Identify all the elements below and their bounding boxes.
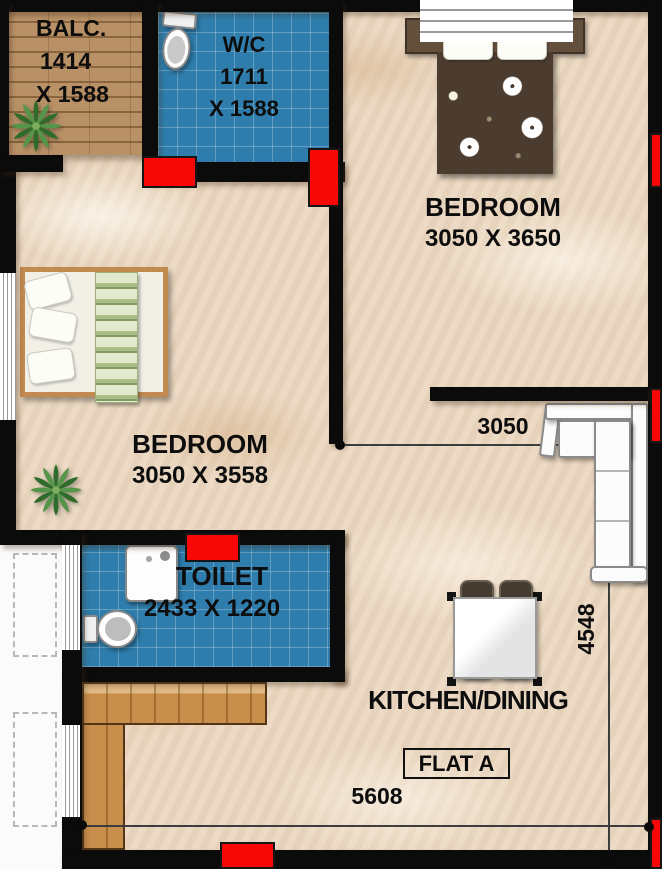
- wall: [0, 155, 63, 172]
- toilet-dim: 2433 X 1220: [82, 596, 342, 622]
- wall: [0, 530, 345, 545]
- door-marker: [650, 388, 662, 443]
- door-marker: [308, 148, 340, 207]
- kitchen-counter: [82, 682, 267, 725]
- dimension-kitchen-depth: 4548: [574, 597, 604, 661]
- sofa: [594, 420, 631, 568]
- bedroom-left-dim: 3050 X 3558: [40, 463, 360, 489]
- door-marker: [142, 156, 197, 188]
- window: [62, 725, 80, 817]
- wc-dim: 1711: [158, 65, 330, 89]
- wall: [142, 0, 158, 162]
- dimension-dot: [644, 822, 654, 832]
- toilet-label: TOILET: [122, 562, 322, 591]
- pillow: [26, 347, 76, 385]
- door-marker: [650, 133, 662, 188]
- wall: [62, 667, 345, 682]
- wall: [430, 387, 648, 401]
- dimension-dot: [77, 820, 87, 830]
- dining-table: [453, 597, 537, 679]
- bed: [437, 52, 553, 174]
- projection-outline: [13, 553, 57, 657]
- floor-plan: BALC. 1414 X 1588 W/C 1711 X 1588 BEDROO…: [0, 0, 662, 869]
- wc-dim: X 1588: [158, 97, 330, 121]
- bedroom-left-label: BEDROOM: [40, 430, 360, 459]
- wall: [329, 0, 343, 444]
- blanket: [95, 272, 138, 403]
- dimension-kitchen-width: 3050: [453, 414, 553, 439]
- projection-outline: [13, 712, 57, 827]
- sofa: [590, 566, 648, 583]
- bedroom-top-label: BEDROOM: [343, 193, 643, 222]
- wall: [0, 0, 9, 160]
- flat-label: FLAT A: [403, 752, 510, 776]
- window: [62, 545, 80, 650]
- wc-label: W/C: [158, 33, 330, 57]
- kitchen-dining-label: KITCHEN/DINING: [318, 686, 618, 715]
- dimension-bottom-width: 5608: [327, 784, 427, 809]
- sofa: [631, 403, 648, 581]
- dimension-dot: [603, 856, 613, 866]
- dimension-line-5608: [82, 825, 649, 827]
- balcony-dim: X 1588: [36, 82, 109, 107]
- door-marker: [220, 842, 275, 869]
- door-marker: [185, 533, 240, 562]
- toilet-tank: [162, 10, 197, 29]
- bedroom-top-dim: 3050 X 3650: [343, 226, 643, 252]
- window: [420, 0, 573, 42]
- balcony-dim: 1414: [40, 49, 91, 74]
- shower-head-icon: [160, 551, 170, 561]
- balcony-label: BALC.: [36, 16, 106, 41]
- window: [0, 273, 16, 420]
- wall: [62, 850, 662, 869]
